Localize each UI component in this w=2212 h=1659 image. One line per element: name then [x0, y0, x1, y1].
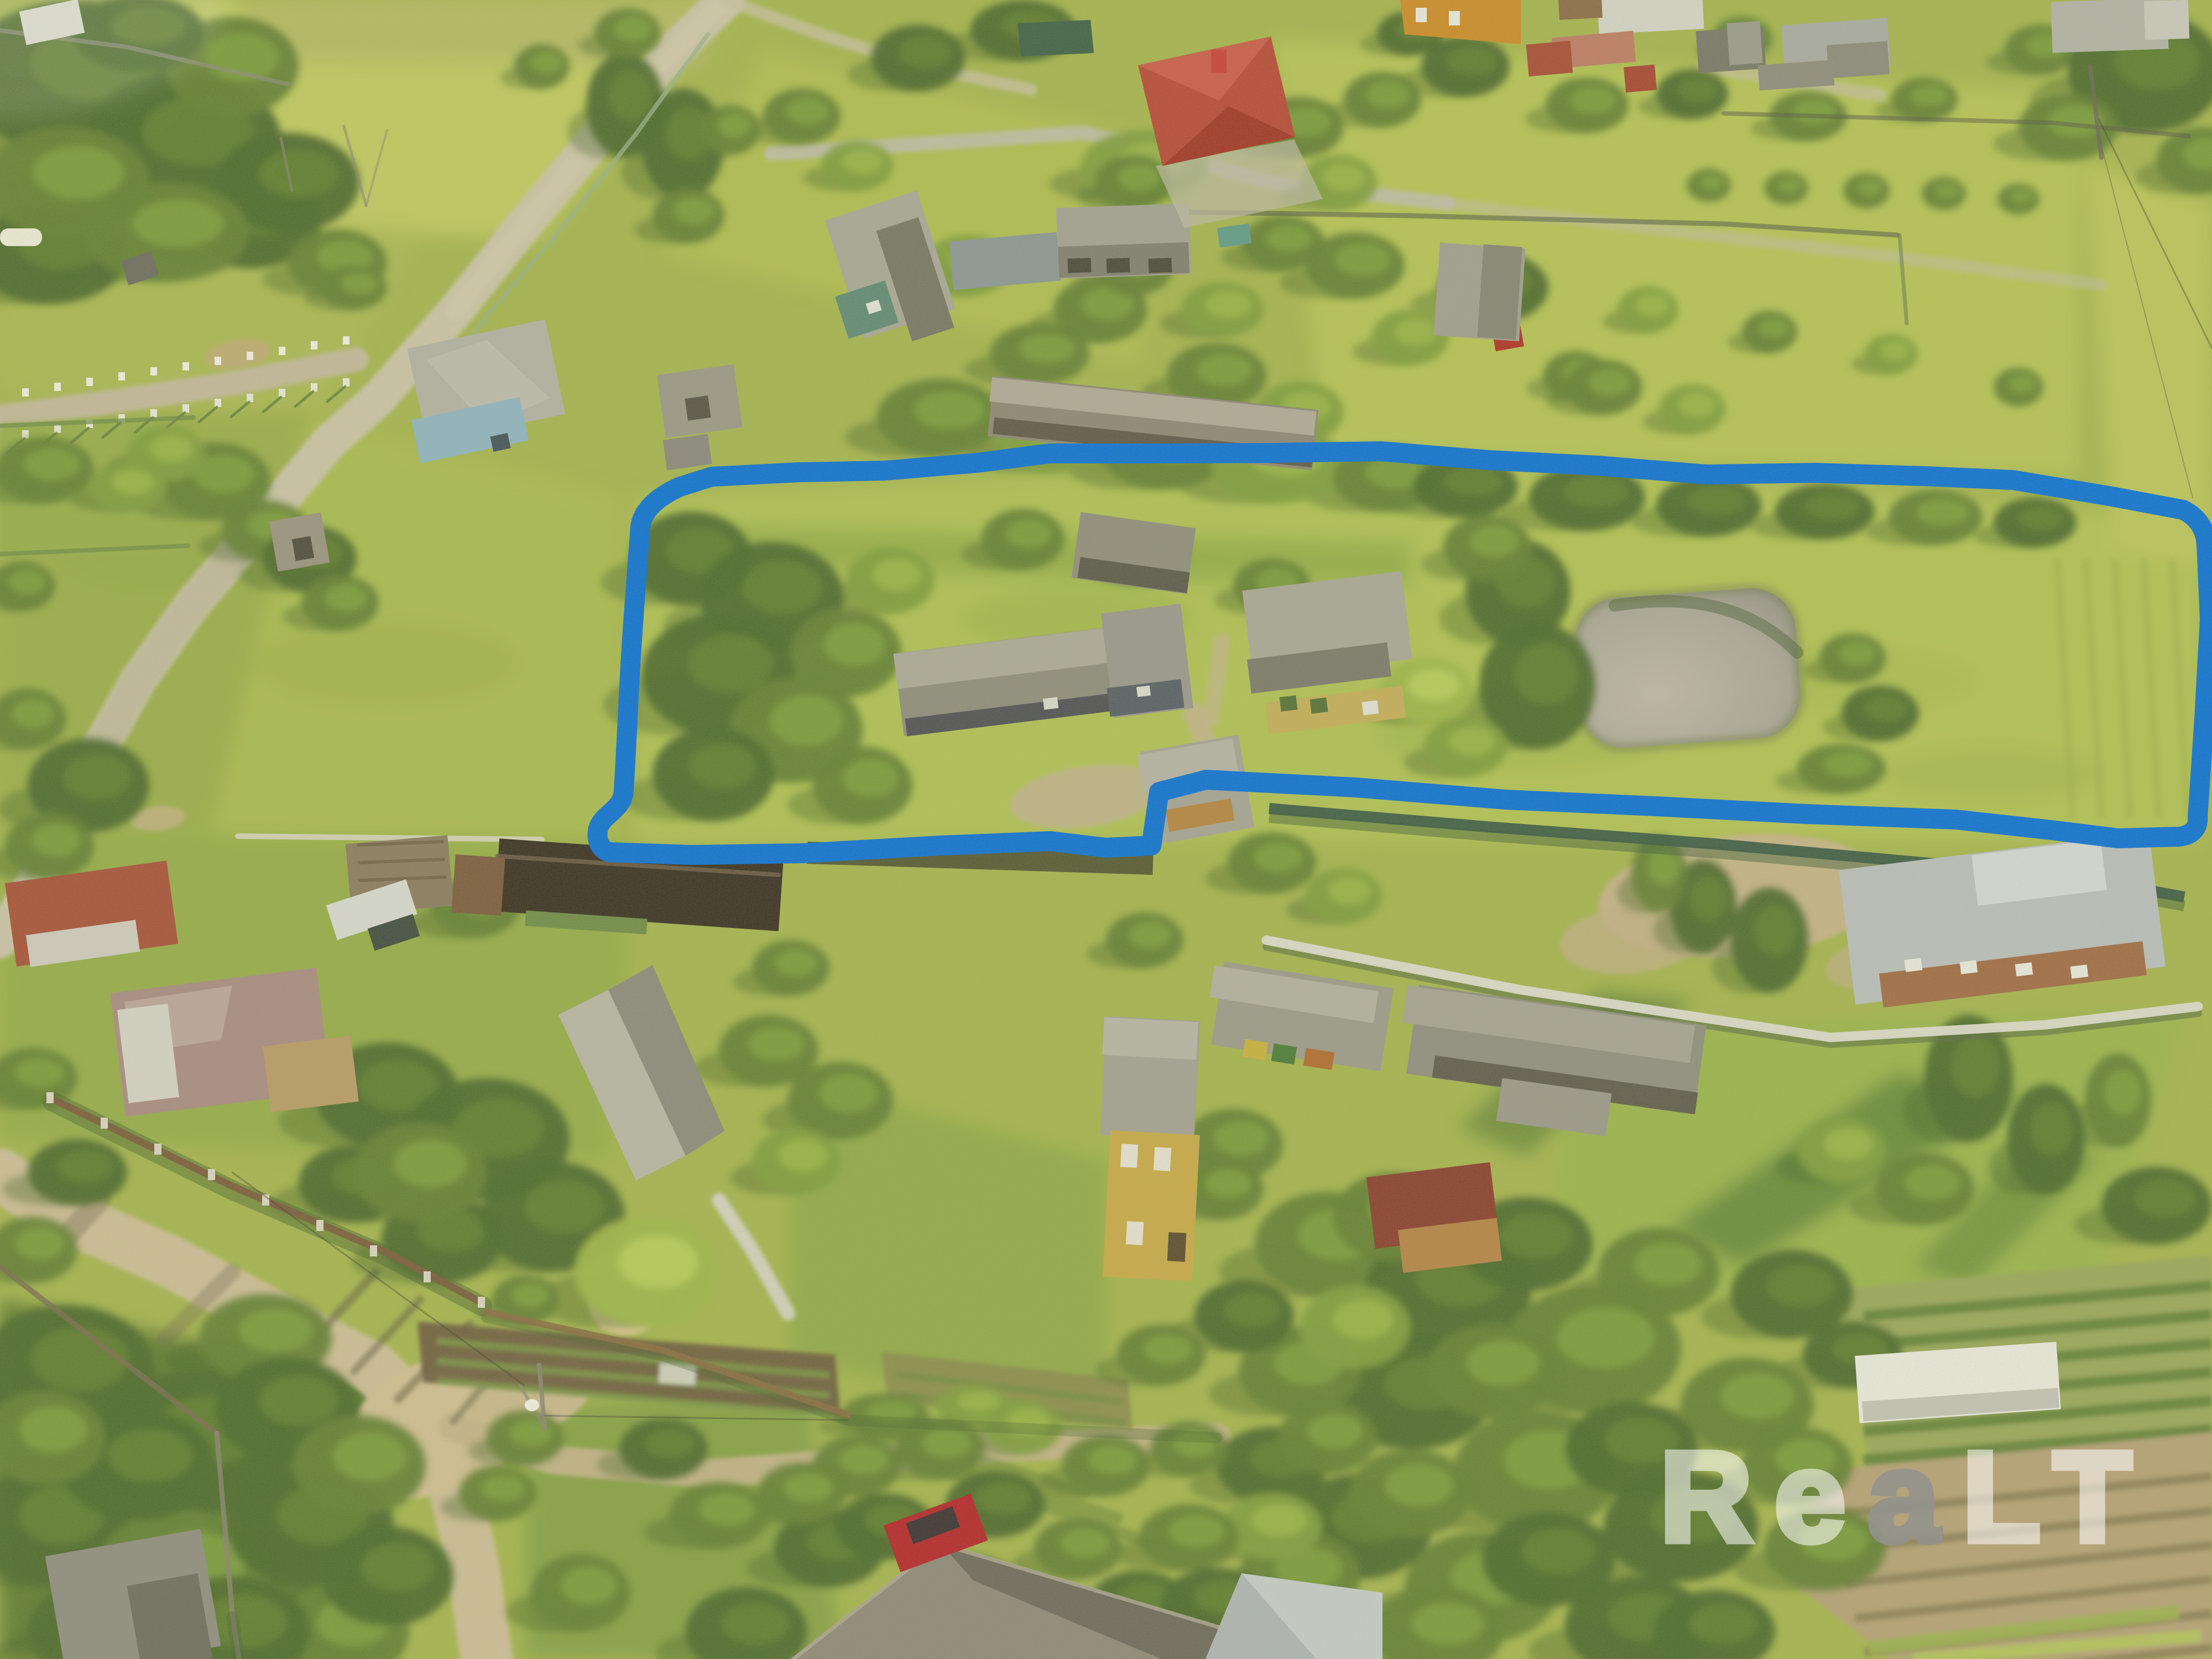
svg-text:LT: LT	[1963, 1426, 2154, 1568]
svg-text:Re: Re	[1660, 1426, 1868, 1568]
svg-text:a: a	[1868, 1426, 1940, 1568]
